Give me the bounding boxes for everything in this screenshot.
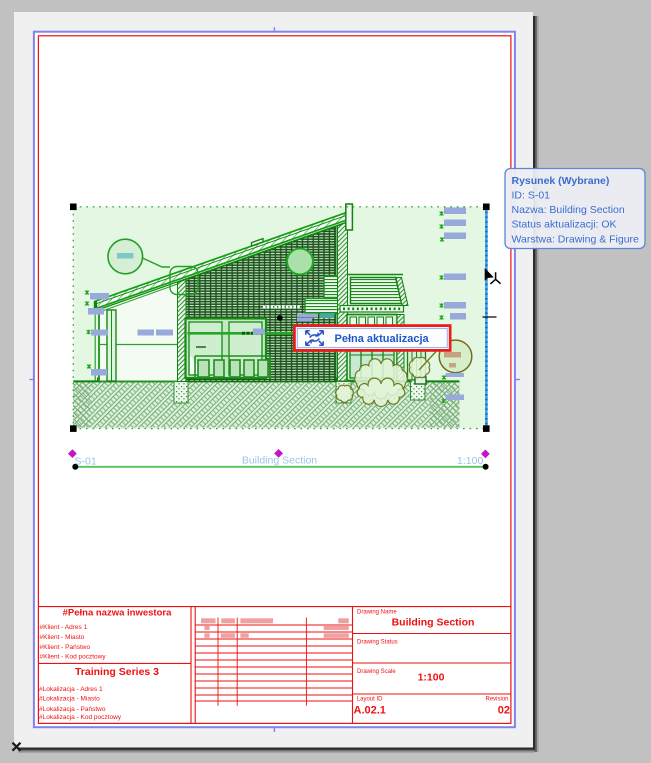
svg-text:Status aktualizacji: OK: Status aktualizacji: OK bbox=[512, 219, 617, 231]
svg-text:ID: S-01: ID: S-01 bbox=[512, 189, 551, 201]
svg-text:#Lokalizacja - Kod pocztowy: #Lokalizacja - Kod pocztowy bbox=[39, 714, 122, 721]
svg-text:1:100: 1:100 bbox=[457, 455, 483, 467]
svg-text:Nazwa: Building Section: Nazwa: Building Section bbox=[512, 204, 625, 216]
svg-text:Drawing Name: Drawing Name bbox=[357, 610, 397, 616]
svg-text:Layout ID: Layout ID bbox=[357, 696, 383, 702]
svg-text:#Klient - Kod pocztowy: #Klient - Kod pocztowy bbox=[40, 654, 107, 661]
svg-text:Revision: Revision bbox=[485, 696, 508, 702]
svg-text:Warstwa: Drawing & Figure: Warstwa: Drawing & Figure bbox=[512, 233, 640, 245]
svg-text:#Klient - Adres 1: #Klient - Adres 1 bbox=[40, 624, 88, 631]
svg-text:Drawing Scale: Drawing Scale bbox=[357, 669, 396, 675]
svg-text:#Pełna nazwa inwestora: #Pełna nazwa inwestora bbox=[63, 608, 172, 619]
svg-text:Training Series 3: Training Series 3 bbox=[75, 666, 159, 678]
svg-text:#Klient - Państwo: #Klient - Państwo bbox=[40, 644, 91, 651]
svg-text:Rysunek (Wybrane): Rysunek (Wybrane) bbox=[512, 175, 610, 187]
svg-text:02: 02 bbox=[498, 705, 510, 717]
svg-text:Pełna aktualizacja: Pełna aktualizacja bbox=[335, 333, 430, 345]
svg-text:#Lokalizacja - Adres 1: #Lokalizacja - Adres 1 bbox=[39, 686, 103, 693]
svg-text:#Klient - Miasto: #Klient - Miasto bbox=[40, 634, 85, 641]
svg-text:A.02.1: A.02.1 bbox=[354, 705, 386, 717]
svg-text:Building Section: Building Section bbox=[392, 617, 475, 629]
svg-text:S-01: S-01 bbox=[75, 455, 97, 467]
svg-text:#Lokalizacja - Państwo: #Lokalizacja - Państwo bbox=[39, 706, 106, 713]
svg-text:Drawing Status: Drawing Status bbox=[357, 639, 398, 645]
svg-text:1:100: 1:100 bbox=[418, 671, 445, 683]
svg-text:#Lokalizacja - Miasto: #Lokalizacja - Miasto bbox=[39, 696, 100, 703]
